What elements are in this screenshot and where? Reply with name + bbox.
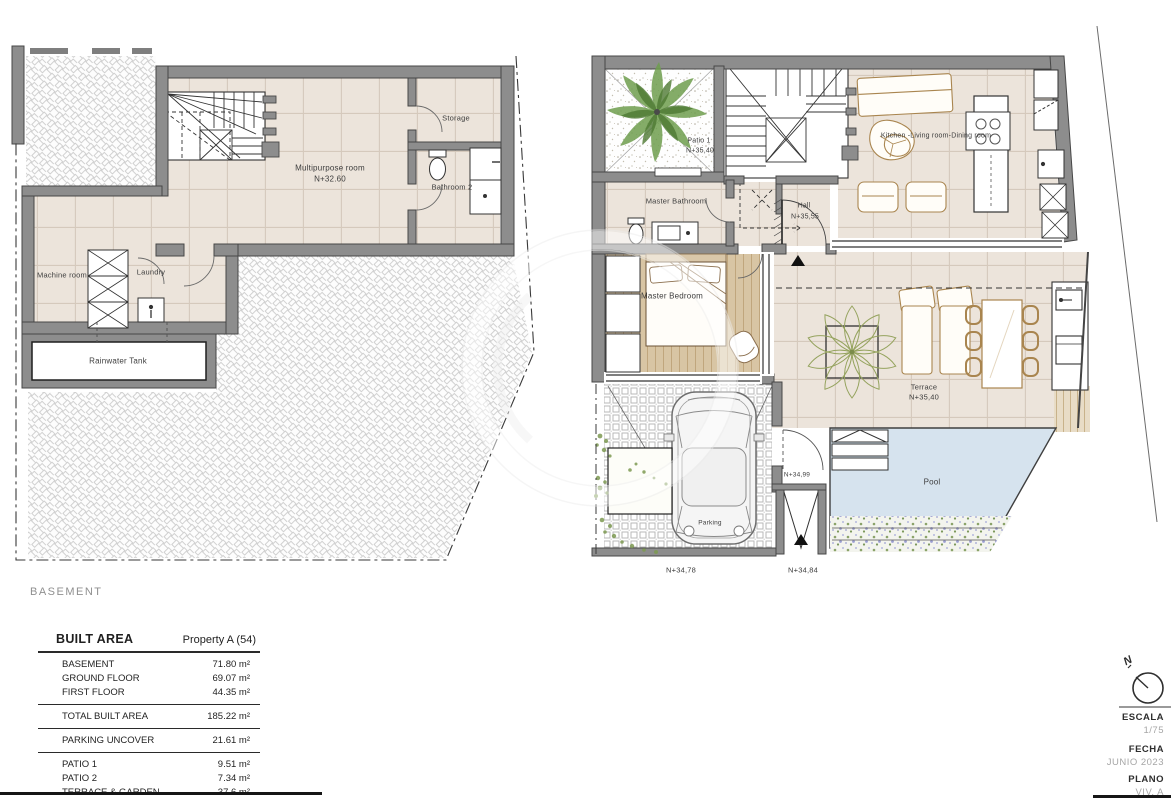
escala-value: 1/75 bbox=[1144, 725, 1165, 736]
table-header: BUILT AREA Property A (54) bbox=[38, 630, 260, 653]
level-label-multipurpose: N+32.60 bbox=[314, 175, 346, 184]
room-label-bathroom2: Bathroom 2 bbox=[432, 183, 473, 192]
fecha-value: JUNIO 2023 bbox=[1107, 757, 1164, 768]
row-value: 69.07 m² bbox=[213, 673, 251, 684]
room-label-laundry: Laundry bbox=[137, 268, 166, 277]
row-label: GROUND FLOOR bbox=[62, 673, 140, 684]
table-group-parking: PARKING UNCOVER 21.61 m² bbox=[38, 728, 260, 752]
table-title: BUILT AREA bbox=[56, 632, 133, 646]
table-row: PARKING UNCOVER 21.61 m² bbox=[38, 733, 260, 747]
row-value: 44.35 m² bbox=[213, 687, 251, 698]
row-label: PATIO 2 bbox=[62, 773, 97, 784]
table-row: FIRST FLOOR 44.35 m² bbox=[38, 685, 260, 699]
room-label-multipurpose: Multipurpose room bbox=[295, 164, 365, 173]
escala-label: ESCALA bbox=[1122, 712, 1164, 723]
table-row: PATIO 2 7.34 m² bbox=[38, 771, 260, 785]
row-label: PARKING UNCOVER bbox=[62, 735, 154, 746]
level-label-hall: N+35,55 bbox=[791, 214, 819, 221]
room-label-hall: Hall bbox=[798, 203, 811, 210]
row-label: PATIO 1 bbox=[62, 759, 97, 770]
fecha-label: FECHA bbox=[1129, 744, 1164, 755]
room-label-parking: Parking bbox=[698, 520, 721, 527]
table-row: BASEMENT 71.80 m² bbox=[38, 657, 260, 671]
property-boundary-line bbox=[1097, 26, 1157, 522]
level-label-terrace: N+35,40 bbox=[909, 393, 939, 402]
basement-stairs-icon bbox=[165, 92, 279, 160]
room-label-storage: Storage bbox=[442, 114, 470, 123]
plano-label: PLANO bbox=[1128, 774, 1164, 785]
room-label-rainwater-tank: Rainwater Tank bbox=[89, 357, 147, 366]
title-block-divider bbox=[1119, 706, 1171, 708]
row-value: 21.61 m² bbox=[213, 735, 251, 746]
row-label: BASEMENT bbox=[62, 659, 114, 670]
row-label: TOTAL BUILT AREA bbox=[62, 711, 148, 722]
table-row: PATIO 1 9.51 m² bbox=[38, 757, 260, 771]
deck-strip bbox=[1054, 386, 1090, 432]
room-label-machine-room: Machine room bbox=[37, 271, 87, 280]
floor-caption-basement: BASEMENT bbox=[30, 586, 103, 598]
table-group-total: TOTAL BUILT AREA 185.22 m² bbox=[38, 704, 260, 728]
built-area-table: BUILT AREA Property A (54) BASEMENT 71.8… bbox=[38, 630, 260, 802]
flower-bed bbox=[830, 516, 1012, 552]
room-label-patio1: Patio 1 bbox=[687, 138, 710, 145]
level-label-parking-street: N+34,78 bbox=[666, 566, 696, 575]
level-label-entrance-gate: N+34,99 bbox=[784, 472, 810, 479]
row-value: 7.34 m² bbox=[218, 773, 250, 784]
sheet-border-bottom-left bbox=[0, 792, 322, 795]
table-group-floors: BASEMENT 71.80 m² GROUND FLOOR 69.07 m² … bbox=[38, 653, 260, 704]
row-label: FIRST FLOOR bbox=[62, 687, 125, 698]
room-label-terrace: Terrace bbox=[911, 383, 937, 392]
room-label-master-bedroom: Master Bedroom bbox=[641, 292, 703, 301]
room-label-pool: Pool bbox=[924, 478, 941, 487]
north-compass-icon bbox=[1128, 665, 1163, 703]
wing-floor bbox=[34, 196, 228, 322]
row-value: 71.80 m² bbox=[213, 659, 251, 670]
room-label-master-bathroom: Master Bathroom bbox=[646, 197, 707, 206]
table-row: GROUND FLOOR 69.07 m² bbox=[38, 671, 260, 685]
level-triangle-gate bbox=[794, 534, 808, 545]
row-value: 185.22 m² bbox=[207, 711, 250, 722]
table-row: TOTAL BUILT AREA 185.22 m² bbox=[38, 709, 260, 723]
level-label-gate-street: N+34,84 bbox=[788, 566, 818, 575]
room-label-kitchen-living-dining: Kitchen -Living room-Dining room bbox=[881, 133, 991, 140]
row-value: 9.51 m² bbox=[218, 759, 250, 770]
floorplan-sheet: Multipurpose room N+32.60 Storage Bathro… bbox=[0, 0, 1171, 802]
level-label-patio1: N+35,40 bbox=[686, 148, 714, 155]
sheet-border-bottom-right bbox=[1093, 795, 1171, 798]
table-property: Property A (54) bbox=[183, 634, 256, 646]
basement-plan bbox=[12, 46, 534, 560]
